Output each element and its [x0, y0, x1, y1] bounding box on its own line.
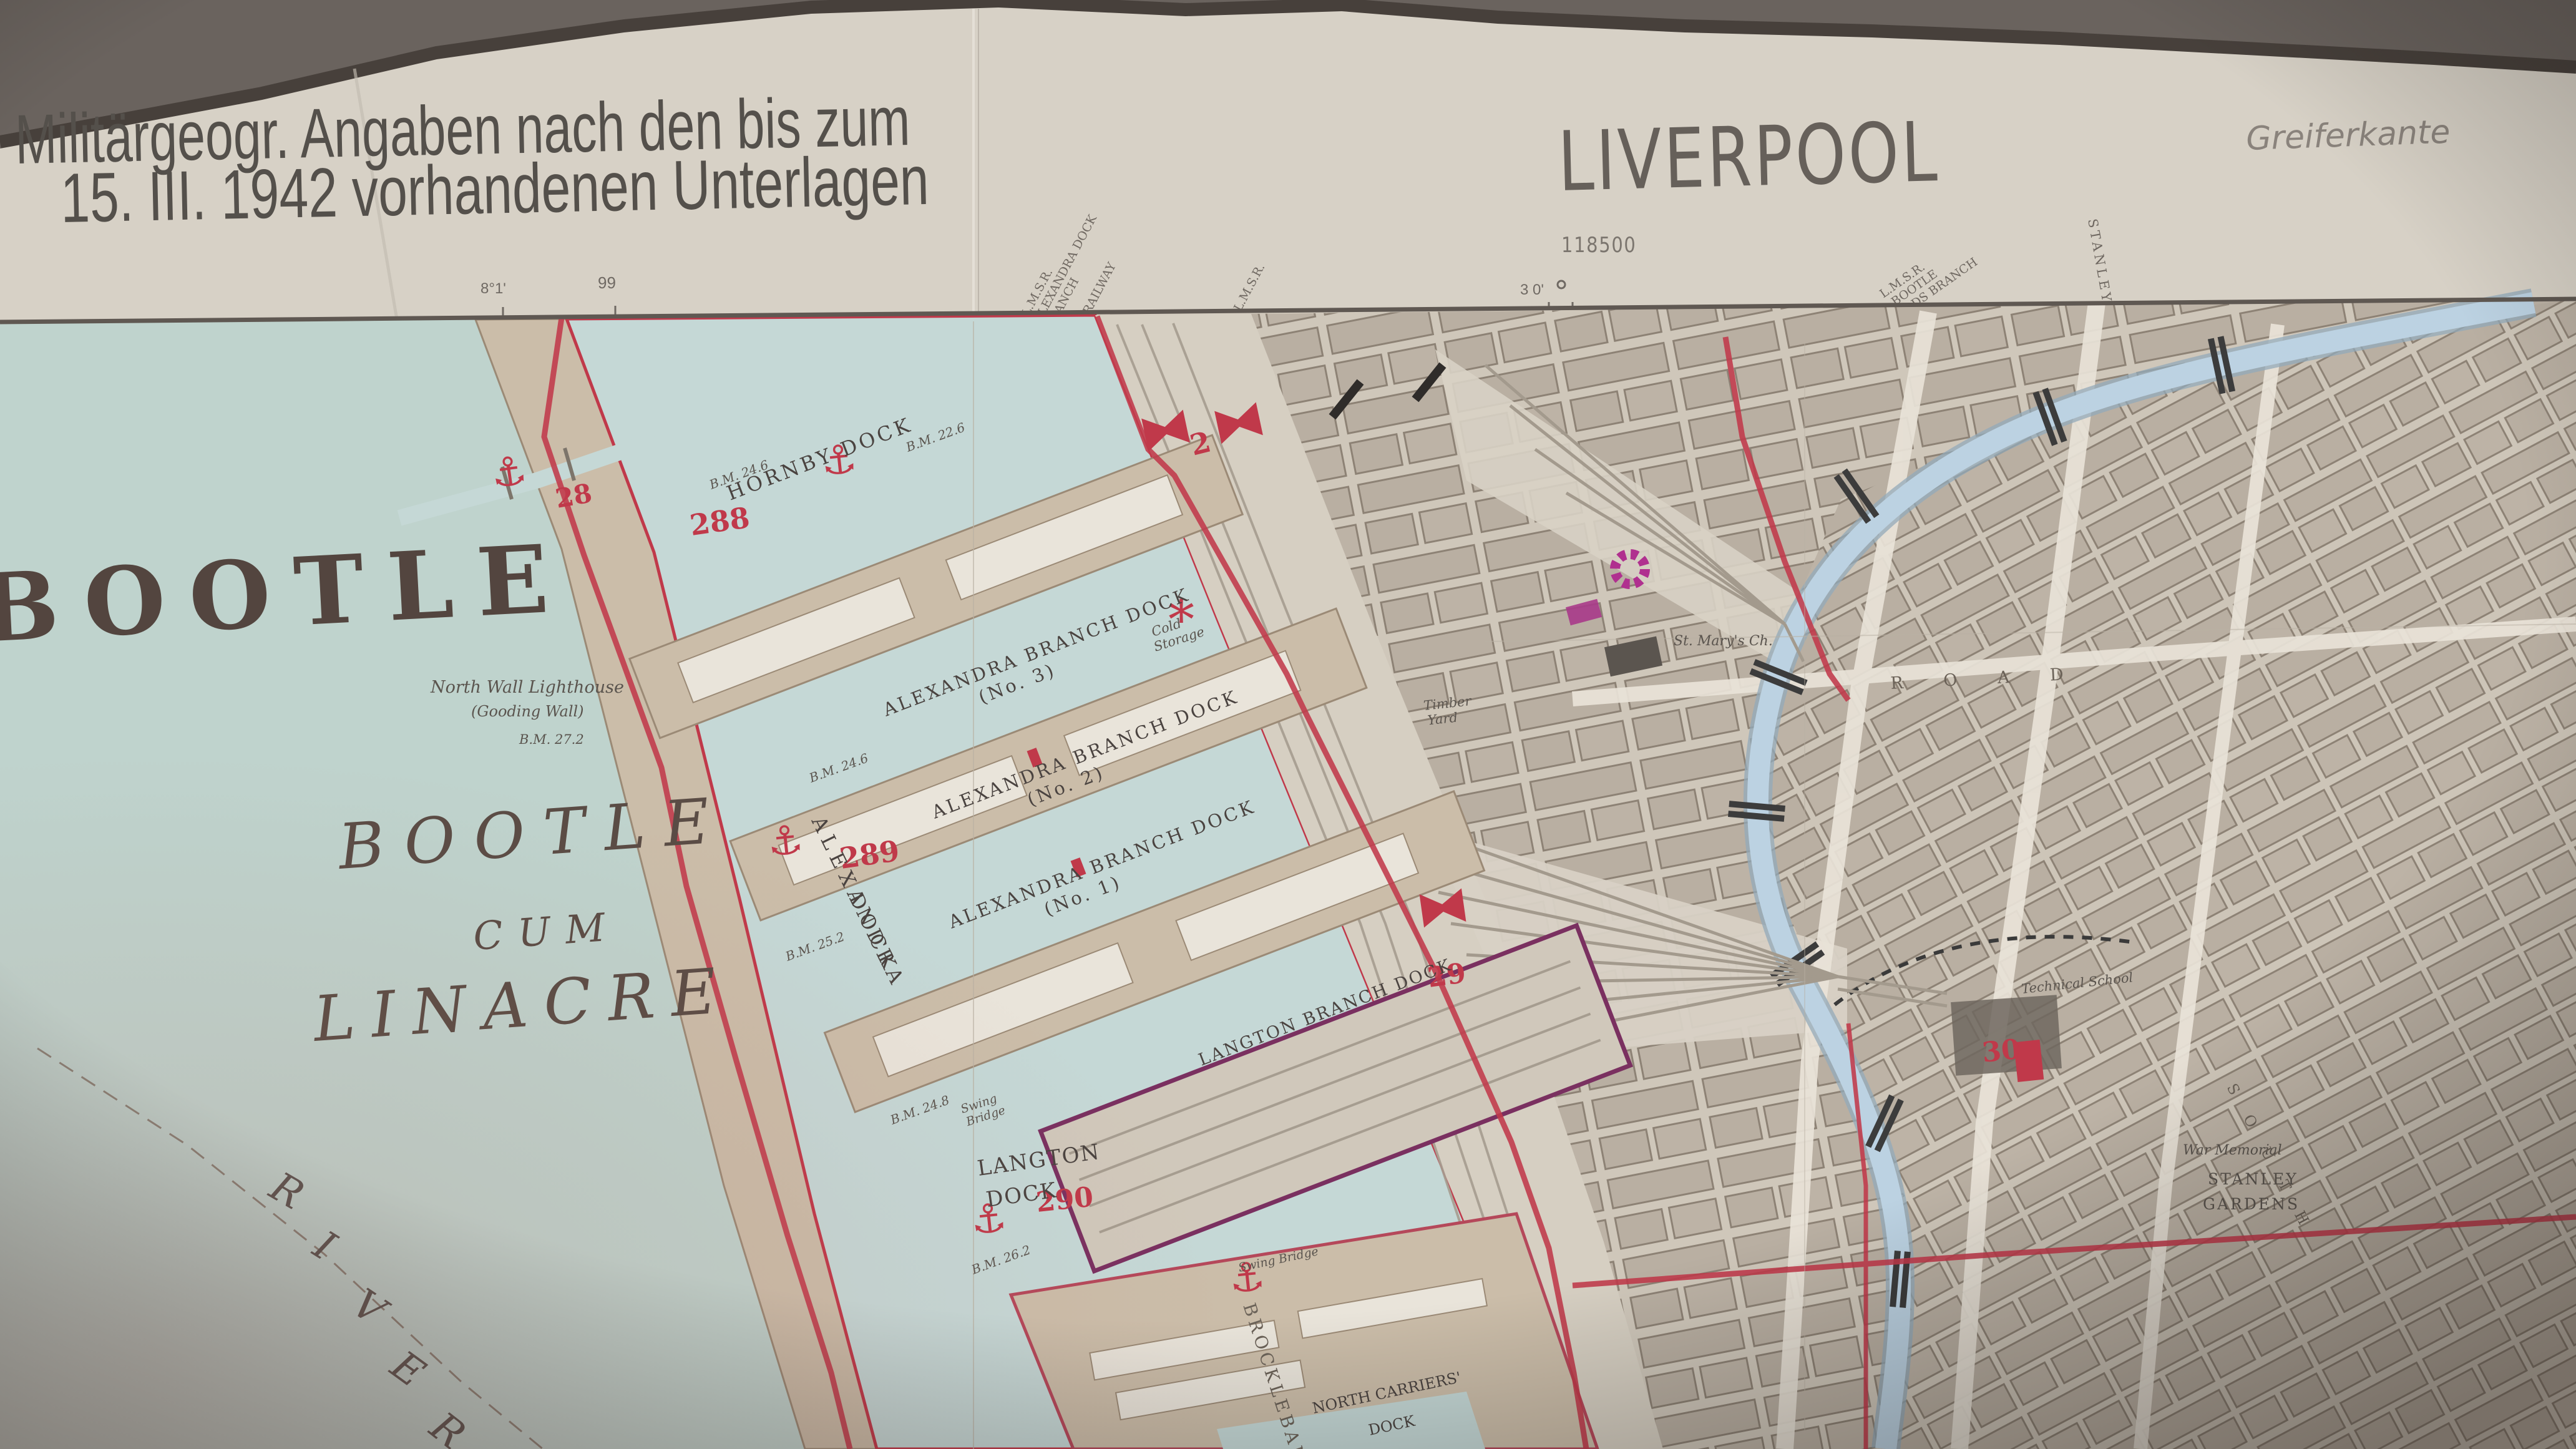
corner-tint-overlay — [0, 0, 2576, 1449]
photo-of-map: Militärgeogr. Angaben nach den bis zum 1… — [0, 0, 2576, 1449]
map-photo-svg: Militärgeogr. Angaben nach den bis zum 1… — [0, 0, 2576, 1449]
